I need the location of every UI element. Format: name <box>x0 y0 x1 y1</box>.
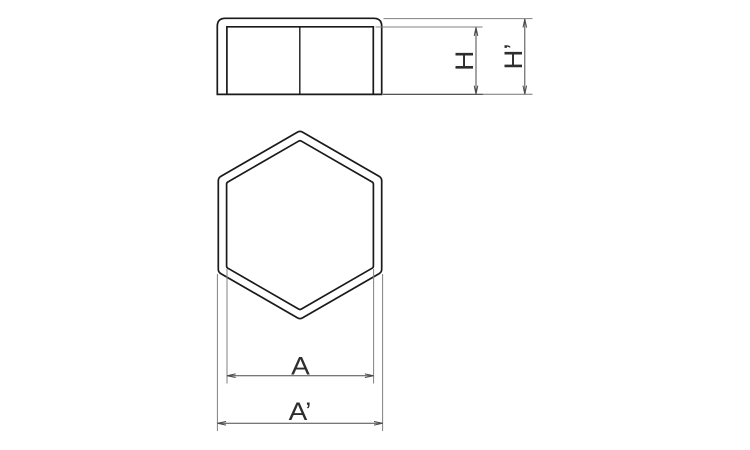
svg-text:H’: H’ <box>499 44 528 70</box>
svg-text:A’: A’ <box>289 398 312 426</box>
svg-text:A: A <box>291 352 310 380</box>
svg-text:H: H <box>451 51 479 71</box>
